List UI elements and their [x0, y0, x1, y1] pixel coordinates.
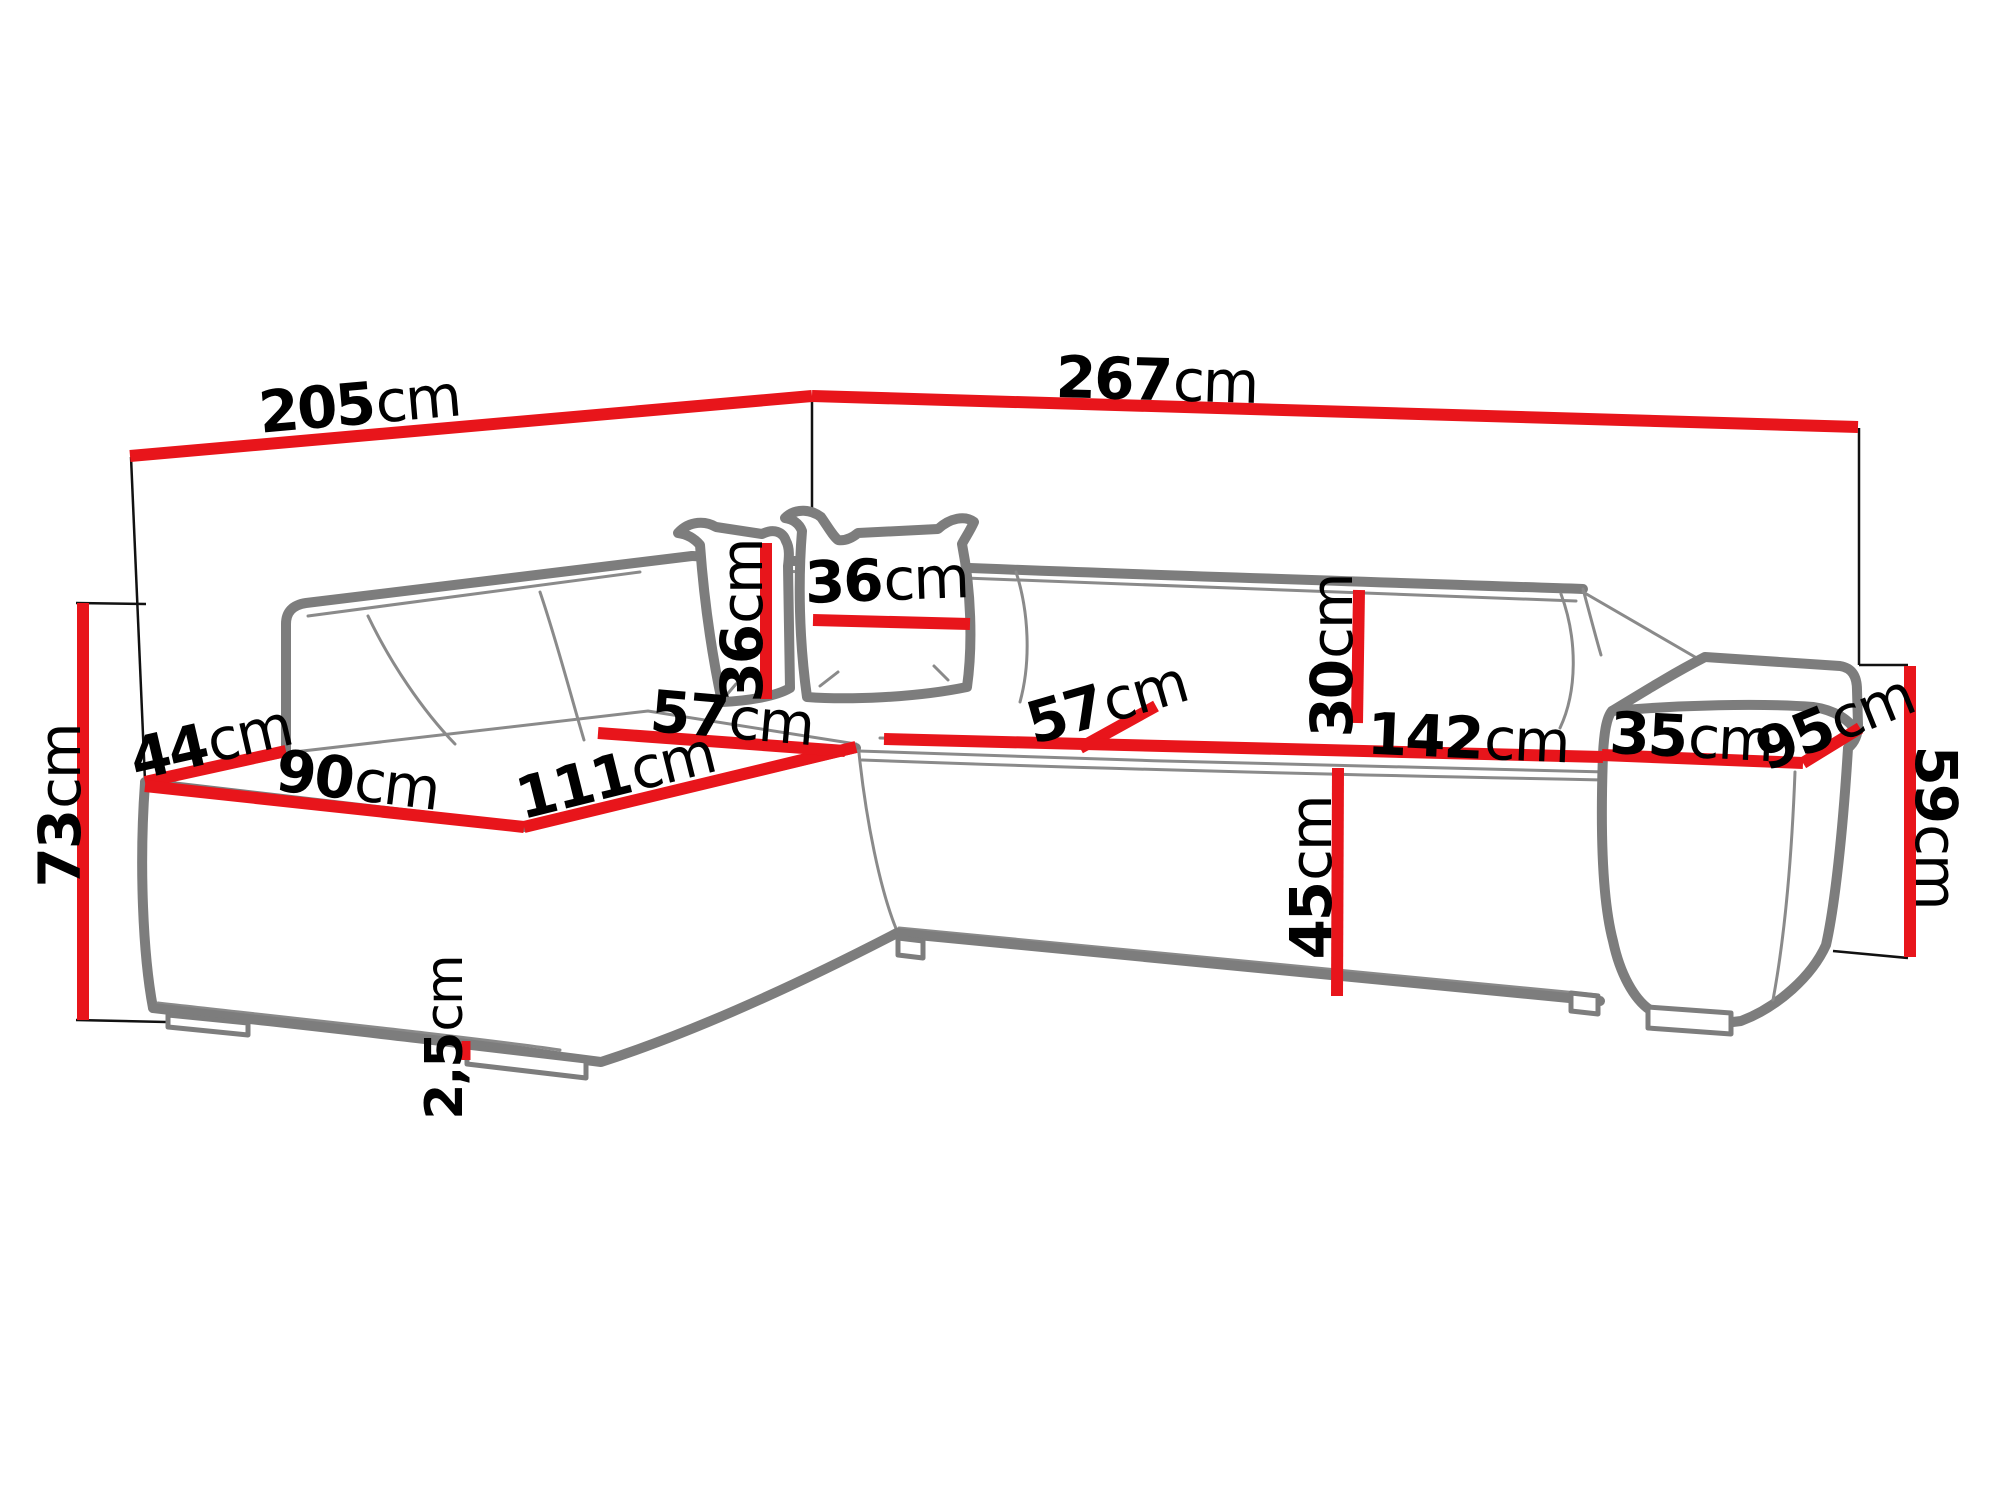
extension-armrest-bottom	[1833, 951, 1908, 958]
leg-armrest	[1648, 1007, 1731, 1034]
main-bottom-inner-line	[899, 928, 1598, 995]
dim-label-59: 59cm	[1902, 745, 1970, 908]
dim-label-44: 44cm	[123, 691, 297, 794]
dim-label-142: 142cm	[1366, 700, 1570, 777]
dim-line-36-horizontal	[813, 620, 970, 624]
chaise-bottom-edge	[153, 933, 897, 1062]
extension-height-bottom	[76, 1020, 166, 1022]
dim-label-2-5: 2,5cm	[415, 956, 475, 1119]
dim-label-45: 45cm	[1277, 796, 1345, 959]
sofa-dimension-diagram: 205cm 267cm 73cm 44cm 90cm 111cm 57cm 36…	[0, 0, 2000, 1500]
diagram-canvas: 205cm 267cm 73cm 44cm 90cm 111cm 57cm 36…	[0, 0, 2000, 1500]
chaise-right-seam	[859, 753, 897, 931]
main-cushion-seam	[1016, 572, 1027, 702]
dim-label-73: 73cm	[26, 724, 94, 887]
dim-label-90: 90cm	[272, 736, 442, 823]
chaise-cushion-seam-1	[368, 616, 455, 744]
main-bottom-edge	[897, 933, 1600, 1001]
dim-label-35: 35cm	[1608, 699, 1774, 775]
leg-chaise-front	[467, 1047, 586, 1078]
dim-label-36-horizontal: 36cm	[804, 543, 969, 617]
dim-line-267	[812, 396, 1858, 427]
chaise-left-front-edge	[142, 783, 153, 1008]
dim-label-36-vertical: 36cm	[708, 539, 776, 702]
dim-label-30: 30cm	[1298, 574, 1366, 737]
leg-corner	[898, 938, 923, 958]
dim-line-205	[130, 396, 812, 456]
chaise-backrest-outline	[286, 556, 692, 757]
leg-main-right	[1571, 993, 1598, 1014]
dim-label-267: 267cm	[1055, 343, 1258, 417]
